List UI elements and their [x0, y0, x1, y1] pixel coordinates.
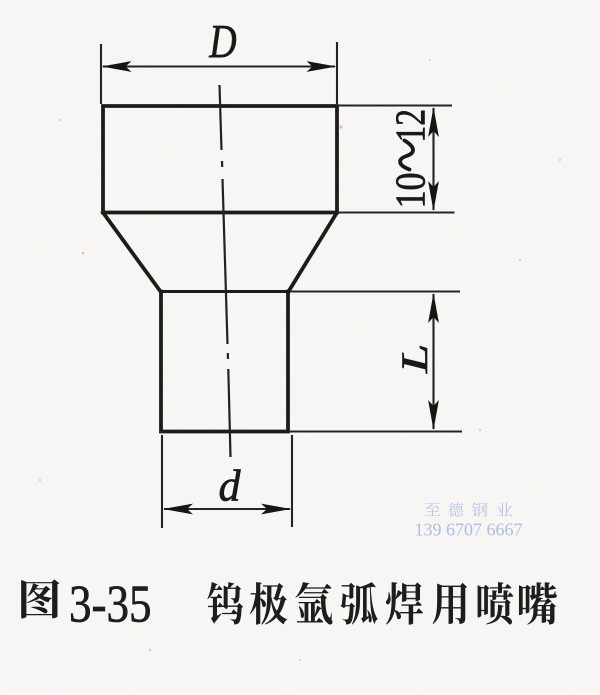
svg-text:139 6707 6667: 139 6707 6667 — [415, 520, 523, 540]
svg-text:d: d — [219, 462, 242, 511]
svg-text:12: 12 — [388, 109, 434, 143]
svg-text:10: 10 — [388, 172, 434, 208]
svg-text:D: D — [208, 15, 236, 68]
svg-text:3-35: 3-35 — [69, 574, 152, 633]
svg-text:L: L — [394, 344, 435, 374]
